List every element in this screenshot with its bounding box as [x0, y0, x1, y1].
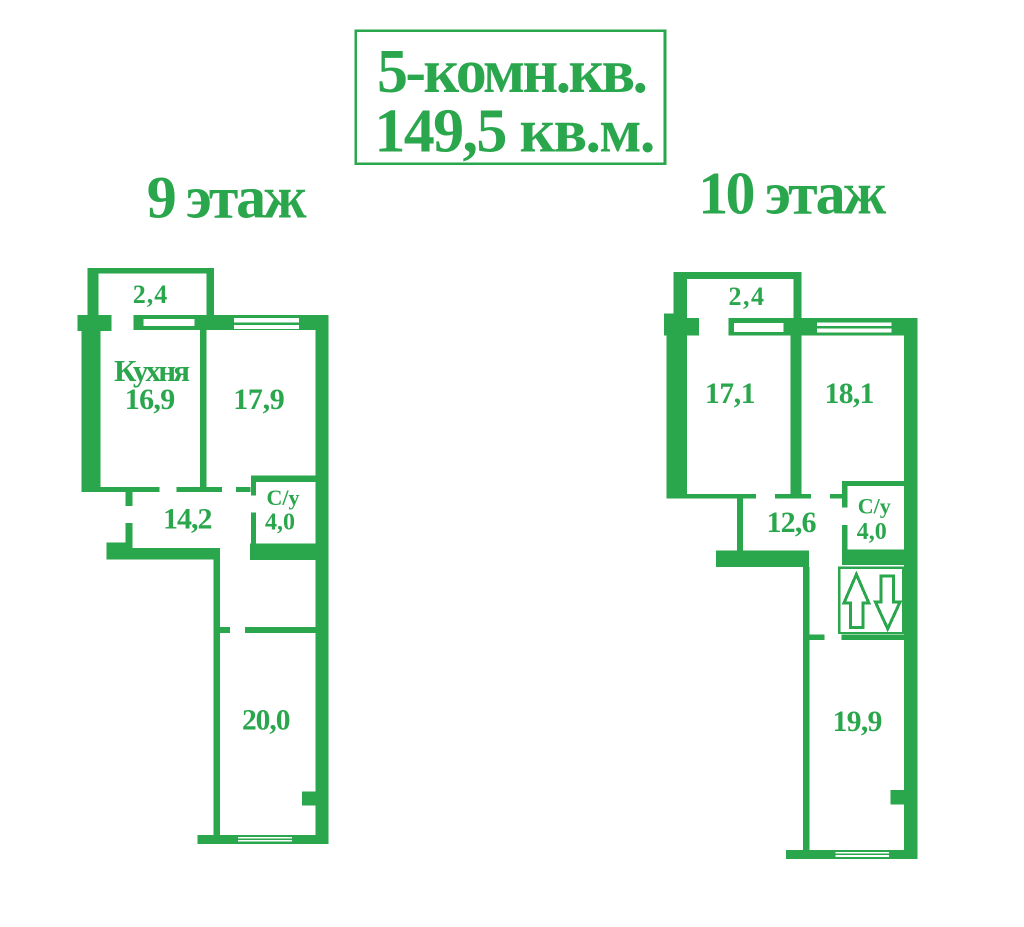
svg-text:12,6: 12,6 — [767, 506, 817, 539]
svg-text:10 этаж: 10 этаж — [698, 161, 886, 227]
svg-text:2,4: 2,4 — [133, 280, 168, 309]
svg-text:4,0: 4,0 — [265, 510, 295, 536]
svg-text:С/у: С/у — [267, 485, 300, 510]
svg-text:16,9: 16,9 — [125, 383, 176, 416]
svg-text:20,0: 20,0 — [242, 705, 291, 737]
svg-text:С/у: С/у — [858, 493, 891, 518]
svg-text:17,1: 17,1 — [705, 378, 756, 410]
svg-text:5-комн.кв.: 5-комн.кв. — [377, 38, 648, 106]
svg-text:9 этаж: 9 этаж — [147, 165, 307, 231]
svg-text:14,2: 14,2 — [163, 503, 213, 536]
svg-text:149,5 кв.м.: 149,5 кв.м. — [374, 98, 655, 166]
svg-text:17,9: 17,9 — [233, 383, 285, 416]
svg-text:18,1: 18,1 — [825, 378, 875, 410]
svg-text:19,9: 19,9 — [833, 706, 883, 738]
svg-text:4,0: 4,0 — [857, 519, 887, 545]
svg-text:2,4: 2,4 — [728, 282, 764, 311]
